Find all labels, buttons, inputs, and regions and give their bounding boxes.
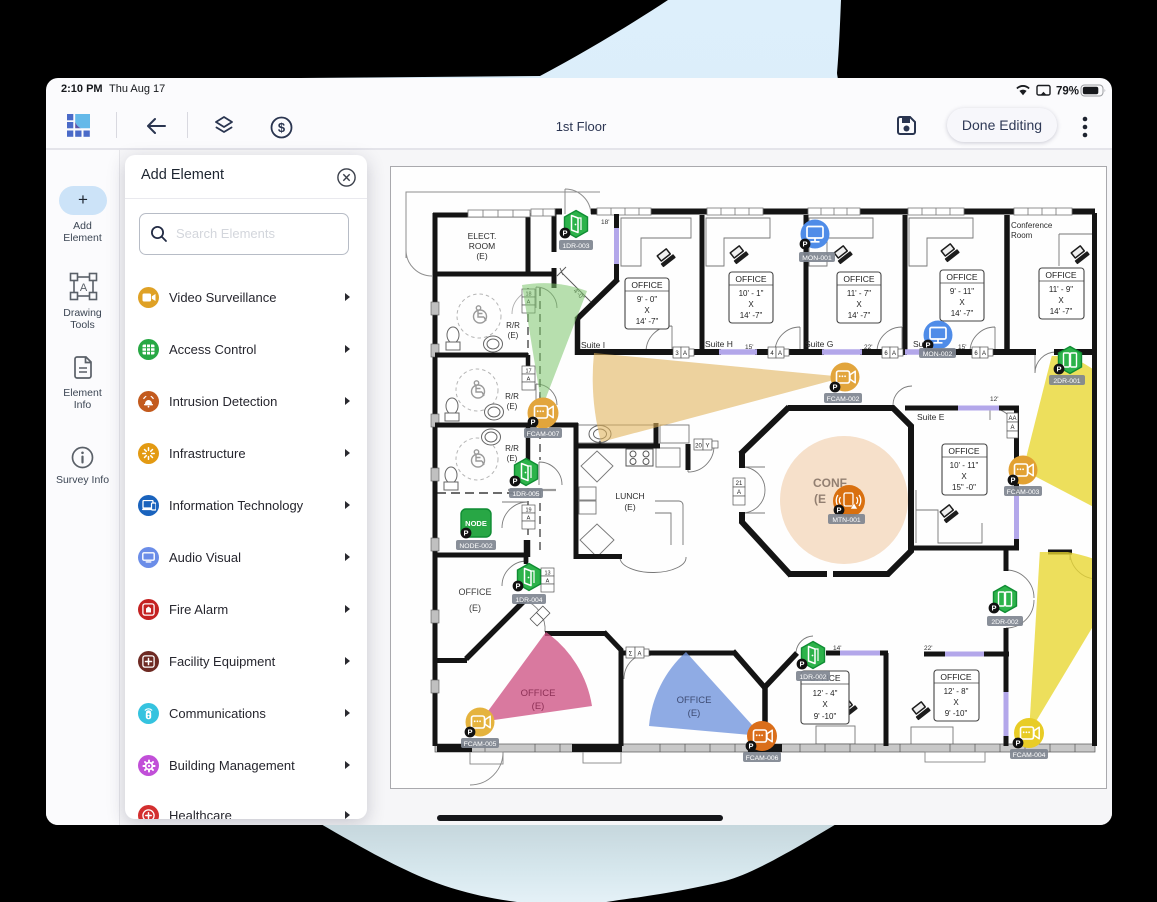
svg-text:21: 21 bbox=[736, 481, 743, 487]
svg-text:79%: 79% bbox=[1056, 86, 1079, 98]
svg-text:ROOM: ROOM bbox=[469, 241, 495, 251]
svg-text:X: X bbox=[953, 698, 959, 707]
svg-text:12': 12' bbox=[990, 396, 998, 403]
svg-text:9' - 11": 9' - 11" bbox=[950, 287, 974, 296]
svg-text:A: A bbox=[80, 282, 88, 294]
svg-text:NODE: NODE bbox=[465, 519, 487, 528]
svg-text:$: $ bbox=[278, 120, 286, 135]
svg-text:9' - 0": 9' - 0" bbox=[637, 295, 658, 304]
svg-text:A: A bbox=[683, 351, 687, 357]
svg-text:12' - 8": 12' - 8" bbox=[944, 687, 969, 696]
svg-text:Conference: Conference bbox=[1011, 221, 1053, 230]
svg-text:R/R: R/R bbox=[505, 444, 519, 453]
svg-text:20: 20 bbox=[695, 444, 702, 450]
svg-text:14' -7": 14' -7" bbox=[636, 317, 659, 326]
svg-text:17: 17 bbox=[525, 369, 531, 375]
svg-text:2DR-001: 2DR-001 bbox=[1053, 378, 1080, 385]
svg-text:OFFICE: OFFICE bbox=[459, 587, 492, 597]
svg-text:LUNCH: LUNCH bbox=[615, 491, 644, 501]
svg-text:FCAM-007: FCAM-007 bbox=[527, 431, 560, 438]
svg-text:A: A bbox=[778, 351, 782, 357]
svg-text:(E): (E) bbox=[624, 502, 636, 512]
svg-text:15': 15' bbox=[958, 344, 966, 351]
svg-text:10' - 1": 10' - 1" bbox=[739, 289, 764, 298]
svg-text:18': 18' bbox=[601, 219, 609, 226]
svg-text:(E): (E) bbox=[508, 331, 519, 340]
svg-text:15" -0": 15" -0" bbox=[952, 483, 976, 492]
svg-text:MON-002: MON-002 bbox=[923, 351, 953, 358]
svg-text:A: A bbox=[1010, 425, 1014, 431]
svg-text:A: A bbox=[982, 351, 986, 357]
svg-text:(E): (E) bbox=[469, 603, 481, 613]
svg-text:FCAM-004: FCAM-004 bbox=[1013, 752, 1046, 759]
svg-text:X: X bbox=[856, 300, 862, 309]
svg-text:AA: AA bbox=[1008, 416, 1016, 422]
svg-text:1DR-005: 1DR-005 bbox=[512, 491, 539, 498]
svg-text:Σ: Σ bbox=[629, 652, 633, 658]
svg-text:19: 19 bbox=[525, 508, 531, 514]
svg-text:A: A bbox=[737, 490, 741, 496]
svg-text:15': 15' bbox=[745, 344, 753, 351]
svg-text:22': 22' bbox=[864, 344, 872, 351]
svg-text:OFFICE: OFFICE bbox=[940, 672, 971, 682]
svg-text:A: A bbox=[892, 351, 896, 357]
svg-text:MON-001: MON-001 bbox=[802, 255, 832, 262]
svg-text:14' -7": 14' -7" bbox=[951, 309, 974, 318]
svg-text:R/R: R/R bbox=[505, 392, 519, 401]
svg-text:FCAM-006: FCAM-006 bbox=[746, 755, 779, 762]
svg-text:Suite G: Suite G bbox=[805, 339, 833, 349]
svg-text:1DR-004: 1DR-004 bbox=[515, 597, 542, 604]
svg-text:FCAM-005: FCAM-005 bbox=[464, 741, 497, 748]
svg-text:X: X bbox=[1058, 296, 1064, 305]
svg-text:9' -10": 9' -10" bbox=[945, 709, 968, 718]
svg-text:(E): (E) bbox=[507, 402, 518, 411]
svg-text:A: A bbox=[637, 652, 641, 658]
svg-text:11' - 7": 11' - 7" bbox=[847, 289, 871, 298]
svg-text:R/R: R/R bbox=[506, 321, 520, 330]
svg-text:OFFICE: OFFICE bbox=[948, 446, 979, 456]
svg-text:10' - 11": 10' - 11" bbox=[950, 461, 979, 470]
svg-text:1DR-003: 1DR-003 bbox=[562, 243, 589, 250]
svg-text:(E): (E) bbox=[476, 251, 488, 261]
svg-text:X: X bbox=[644, 306, 650, 315]
svg-text:(E): (E) bbox=[507, 454, 518, 463]
svg-text:14' -7": 14' -7" bbox=[740, 311, 763, 320]
svg-text:12' - 4": 12' - 4" bbox=[813, 689, 838, 698]
svg-text:ELECT.: ELECT. bbox=[468, 231, 497, 241]
svg-text:Room: Room bbox=[1011, 231, 1033, 240]
svg-text:X: X bbox=[961, 472, 967, 481]
svg-text:FCAM-002: FCAM-002 bbox=[827, 396, 860, 403]
svg-text:9' -10": 9' -10" bbox=[814, 712, 837, 721]
svg-text:Suite E: Suite E bbox=[917, 412, 945, 422]
svg-text:OFFICE: OFFICE bbox=[677, 695, 712, 706]
svg-text:11' - 9": 11' - 9" bbox=[1049, 285, 1073, 294]
svg-text:Y: Y bbox=[705, 444, 709, 450]
svg-text:X: X bbox=[822, 700, 828, 709]
svg-text:2DR-002: 2DR-002 bbox=[991, 619, 1018, 626]
svg-text:1DR-002: 1DR-002 bbox=[799, 674, 826, 681]
svg-text:OFFICE: OFFICE bbox=[1045, 270, 1076, 280]
svg-text:MTN-001: MTN-001 bbox=[832, 517, 861, 524]
svg-text:14': 14' bbox=[833, 645, 841, 652]
svg-text:A: A bbox=[527, 516, 531, 522]
svg-text:A: A bbox=[527, 377, 531, 383]
svg-text:14' -7": 14' -7" bbox=[848, 311, 871, 320]
svg-text:Suite H: Suite H bbox=[705, 339, 733, 349]
svg-text:22': 22' bbox=[924, 645, 932, 652]
svg-text:X: X bbox=[748, 300, 754, 309]
svg-text:14' -7": 14' -7" bbox=[1050, 307, 1073, 316]
svg-text:(E): (E) bbox=[532, 701, 545, 712]
svg-text:OFFICE: OFFICE bbox=[843, 274, 874, 284]
svg-text:X: X bbox=[959, 298, 965, 307]
svg-text:OFFICE: OFFICE bbox=[631, 280, 662, 290]
svg-text:A: A bbox=[546, 579, 550, 585]
svg-text:OFFICE: OFFICE bbox=[521, 688, 556, 699]
svg-text:OFFICE: OFFICE bbox=[735, 274, 766, 284]
svg-text:FCAM-003: FCAM-003 bbox=[1007, 489, 1040, 496]
svg-text:(E): (E) bbox=[688, 708, 701, 719]
svg-text:13: 13 bbox=[544, 571, 550, 577]
svg-text:OFFICE: OFFICE bbox=[946, 272, 977, 282]
svg-text:NODE-002: NODE-002 bbox=[459, 543, 492, 550]
svg-text:Suite I: Suite I bbox=[581, 340, 605, 350]
